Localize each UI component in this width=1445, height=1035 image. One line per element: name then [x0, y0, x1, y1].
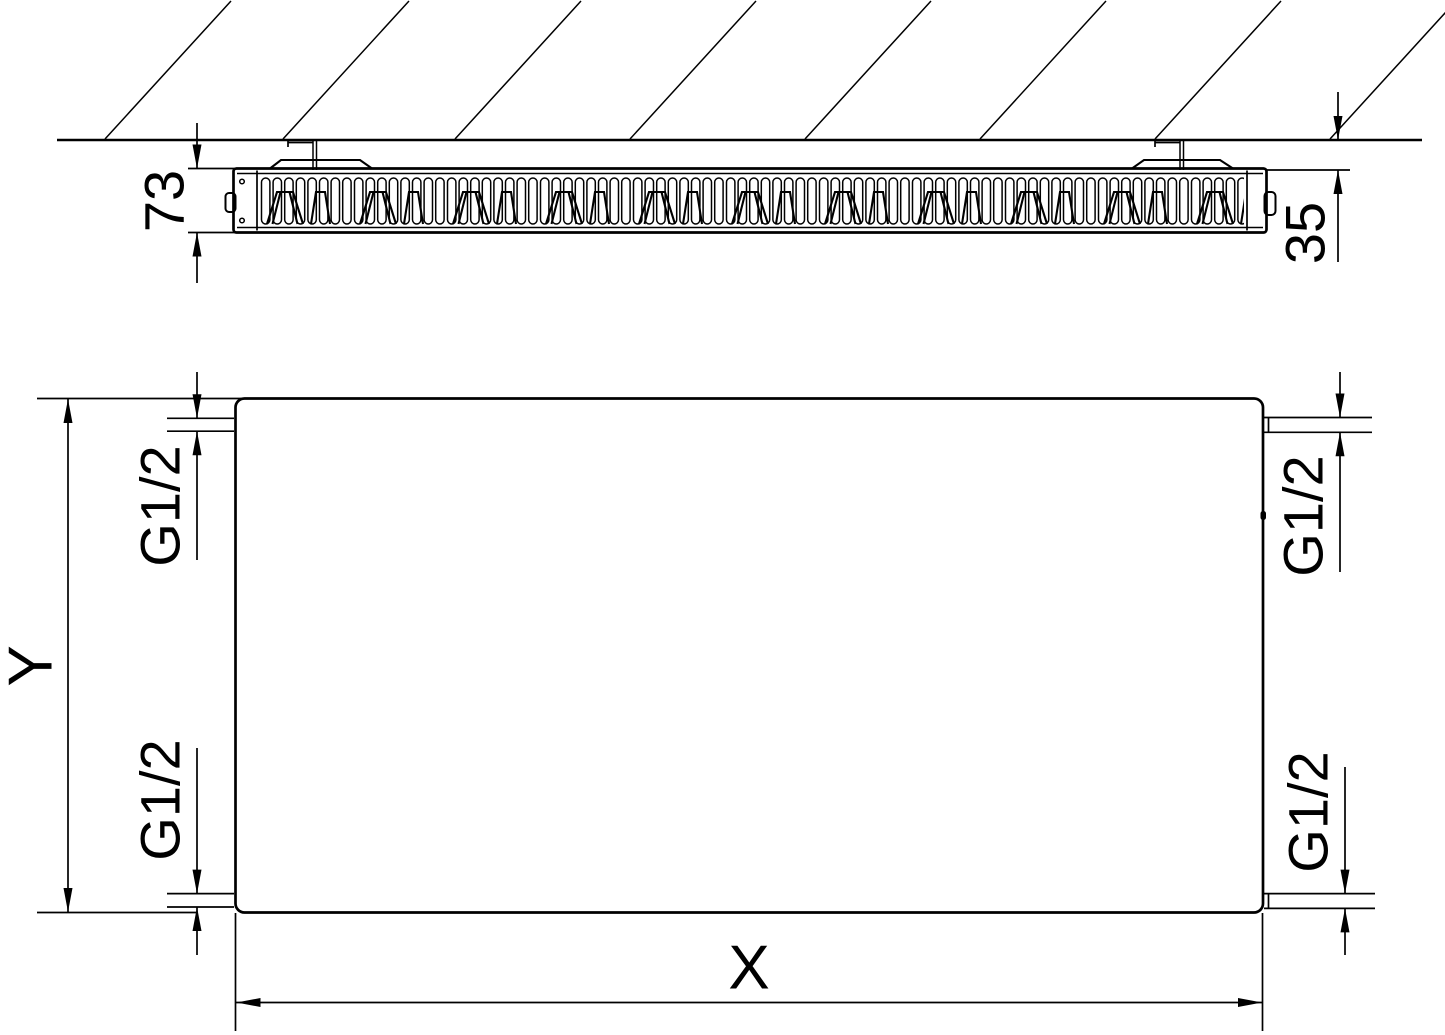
mounting-hook-left: [288, 140, 317, 170]
arrowhead-up: [193, 233, 202, 257]
connection-stub-top-left: [167, 418, 234, 431]
connection-stub-bottom-left: [167, 894, 234, 907]
mounting-hook-right: [1155, 140, 1184, 170]
dim-depth-label: 73: [133, 170, 196, 232]
cap-detail: [240, 218, 245, 223]
arrowhead-down: [1336, 394, 1345, 418]
hatch-line: [455, 1, 581, 139]
front-panel: [236, 399, 1264, 913]
arrowhead-up: [1341, 908, 1350, 932]
arrowhead-up: [64, 399, 73, 423]
panel-edge-mark: [1261, 511, 1267, 520]
arrowhead-up: [1334, 170, 1343, 194]
arrowhead-right: [1238, 998, 1262, 1007]
arrowhead-down: [1334, 116, 1343, 140]
arrowhead-down: [193, 394, 202, 418]
dim-wall-clearance-label: 35: [1274, 202, 1337, 264]
hatch-line: [1155, 1, 1281, 139]
arrowhead-up: [193, 907, 202, 931]
hatch-line: [980, 1, 1106, 139]
arrowhead-down: [1341, 870, 1350, 894]
arrowhead-up: [193, 431, 202, 455]
hatch-line: [105, 1, 231, 139]
arrowhead-down: [193, 145, 202, 169]
dim-width-x: X: [236, 913, 1263, 1031]
thread-label-top-right: G1/2: [1272, 455, 1335, 576]
thread-label-bottom-right: G1/2: [1277, 751, 1340, 872]
hatch-line: [1330, 1, 1445, 139]
connection-stub-top-right: [1264, 418, 1372, 433]
dim-g12-top-left: G1/2: [129, 372, 202, 567]
convector-fins: [260, 168, 1244, 232]
hatch-line: [805, 1, 931, 139]
radiator-front-view: [167, 399, 1375, 913]
hatch-line: [630, 1, 756, 139]
arrowhead-up: [1336, 432, 1345, 456]
connection-stub-bottom-right: [1264, 894, 1375, 909]
wall-section: [57, 1, 1445, 140]
dim-g12-top-right: G1/2: [1272, 372, 1345, 577]
dim-g12-bottom-left: G1/2: [129, 739, 202, 955]
dim-depth: 73: [133, 123, 240, 283]
thread-label-top-left: G1/2: [129, 445, 192, 566]
dim-height-y: Y: [0, 399, 246, 913]
radiator-cross-section: [226, 140, 1276, 233]
dim-g12-bottom-right: G1/2: [1277, 751, 1350, 955]
thread-label-bottom-left: G1/2: [129, 739, 192, 860]
arrowhead-down: [64, 888, 73, 912]
arrowhead-left: [237, 998, 261, 1007]
cap-detail: [240, 179, 245, 184]
dim-wall-clearance: 35: [1267, 92, 1350, 264]
hatch-line: [283, 1, 409, 139]
radiator-technical-drawing: 73 35: [0, 0, 1445, 1035]
dim-width-label: X: [728, 934, 769, 1003]
wall-hatching: [105, 1, 1445, 139]
arrowhead-down: [193, 870, 202, 894]
dim-height-label: Y: [0, 645, 66, 686]
